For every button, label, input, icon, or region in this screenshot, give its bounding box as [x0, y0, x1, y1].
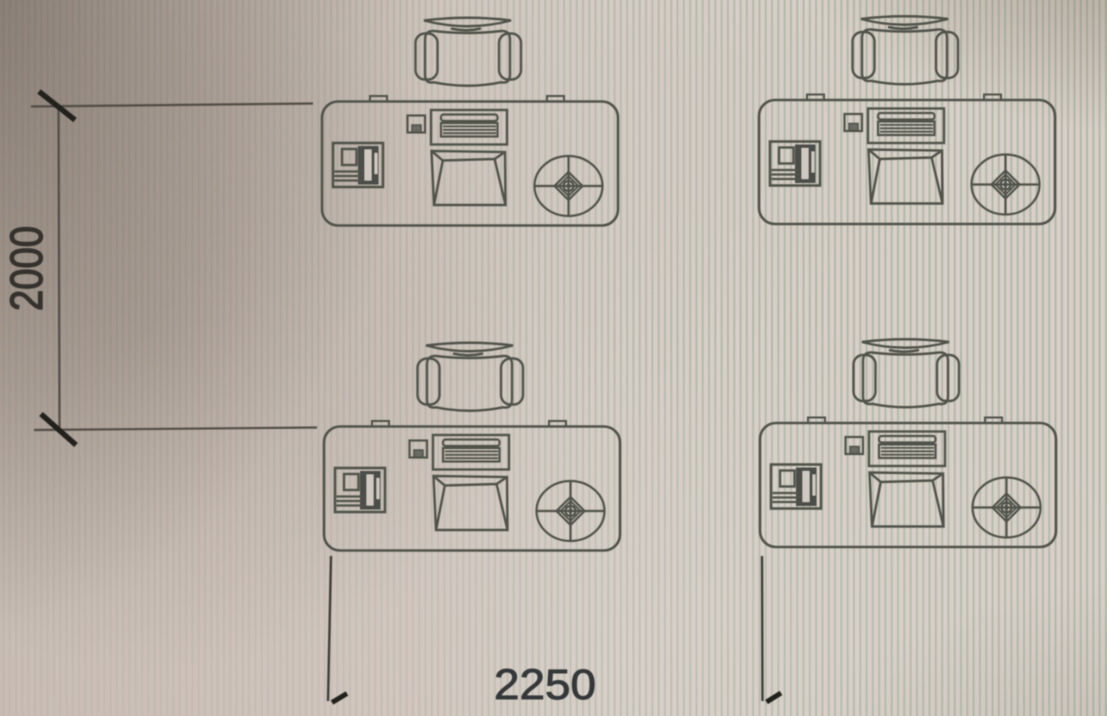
svg-text:2250: 2250 — [494, 662, 596, 709]
svg-text:2000: 2000 — [1, 226, 52, 311]
